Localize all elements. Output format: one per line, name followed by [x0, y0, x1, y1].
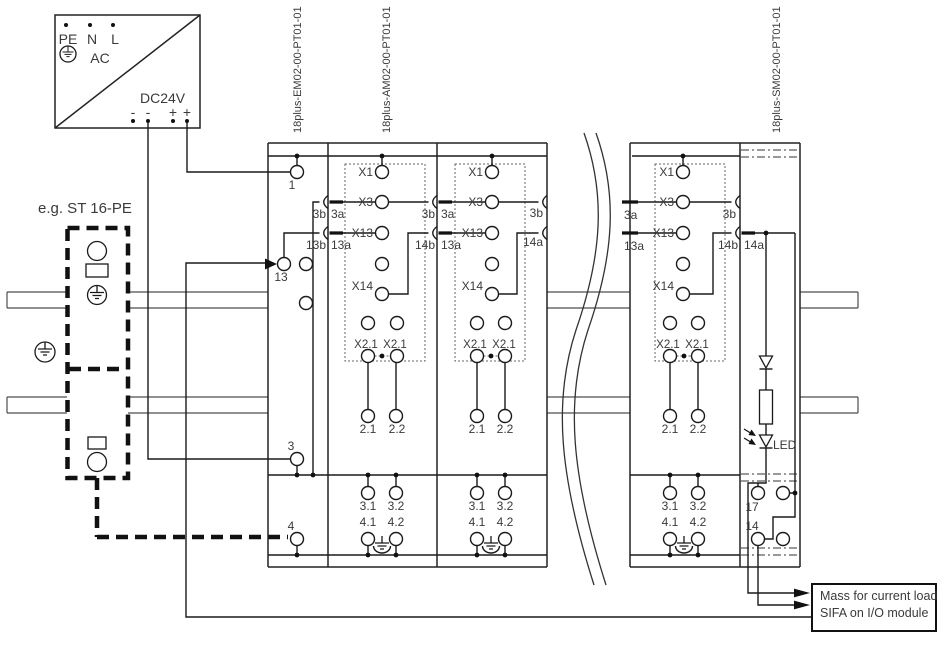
svg-text:3.2: 3.2 [497, 499, 514, 513]
output-mass-label: Mass for current load [820, 589, 937, 603]
supply-pin-l-label: L [111, 31, 119, 47]
svg-text:13b: 13b [306, 238, 326, 252]
wiring-diagram: PE N L AC DC24V - - + + e.g. ST 16-PE [0, 0, 948, 654]
st16-contact-rect-bottom [88, 437, 106, 449]
svg-text:3b: 3b [530, 206, 544, 220]
svg-text:X3: X3 [468, 195, 483, 209]
terminal-3-label: 3 [288, 439, 295, 453]
svg-text:4.2: 4.2 [690, 515, 707, 529]
svg-text:4.1: 4.1 [469, 515, 486, 529]
svg-text:13a: 13a [624, 239, 644, 253]
output-sifa-label: SIFA on I/O module [820, 606, 928, 620]
power-supply: PE N L AC DC24V - - + + [55, 15, 200, 128]
svg-text:3a: 3a [624, 208, 638, 222]
diode-icon [760, 356, 773, 368]
svg-text:2.2: 2.2 [690, 422, 707, 436]
led-label: LED [773, 438, 797, 452]
svg-text:3a: 3a [331, 207, 345, 221]
svg-text:X13: X13 [352, 226, 374, 240]
svg-text:4.1: 4.1 [360, 515, 377, 529]
terminal-17 [752, 487, 765, 500]
supply-ac-label: AC [90, 50, 109, 66]
terminal-14-label: 14 [745, 519, 759, 533]
led-arrows-icon [744, 429, 756, 445]
module2-type-label: 18plus-AM02-00-PT01-01 [381, 6, 393, 133]
svg-text:13a: 13a [441, 238, 461, 252]
svg-text:4.2: 4.2 [497, 515, 514, 529]
module-ground-icons [374, 536, 693, 553]
svg-text:14b: 14b [415, 238, 435, 252]
svg-text:X14: X14 [352, 279, 374, 293]
terminal-13 [278, 258, 291, 271]
svg-text:3.2: 3.2 [690, 499, 707, 513]
svg-text:X3: X3 [358, 195, 373, 209]
svg-text:4.1: 4.1 [662, 515, 679, 529]
st16-ground-icon [88, 286, 107, 305]
svg-text:X3: X3 [659, 195, 674, 209]
svg-text:2.2: 2.2 [497, 422, 514, 436]
din-rail [7, 292, 858, 413]
svg-text:14a: 14a [744, 238, 764, 252]
terminal-4 [291, 533, 304, 546]
svg-text:X14: X14 [462, 279, 484, 293]
svg-text:2.1: 2.1 [662, 422, 679, 436]
svg-text:X2.1: X2.1 [685, 339, 709, 351]
svg-text:3b: 3b [723, 207, 737, 221]
svg-text:X1: X1 [358, 165, 373, 179]
terminal-4-label: 4 [288, 519, 295, 533]
svg-text:14a: 14a [523, 235, 543, 249]
output-box: Mass for current load SIFA on I/O module [812, 584, 937, 631]
svg-text:3.2: 3.2 [388, 499, 405, 513]
svg-text:X2.1: X2.1 [656, 339, 680, 351]
supply-pin-n-label: N [87, 31, 97, 47]
terminal-1 [291, 166, 304, 179]
svg-text:3.1: 3.1 [662, 499, 679, 513]
svg-text:13a: 13a [331, 238, 351, 252]
svg-text:3.1: 3.1 [360, 499, 377, 513]
svg-text:X2.1: X2.1 [383, 339, 407, 351]
svg-text:14b: 14b [718, 238, 738, 252]
schematic-canvas: PE N L AC DC24V - - + + e.g. ST 16-PE [0, 0, 948, 654]
svg-text:X2.1: X2.1 [463, 339, 487, 351]
resistor-icon [760, 390, 773, 424]
st16-contact-circle-top [88, 242, 107, 261]
svg-text:X1: X1 [468, 165, 483, 179]
svg-text:2.1: 2.1 [469, 422, 486, 436]
module1-type-label: 18plus-EM02-00-PT01-01 [292, 6, 304, 133]
st16-pe-device: e.g. ST 16-PE [38, 200, 288, 537]
svg-text:3a: 3a [441, 207, 455, 221]
svg-text:2.2: 2.2 [389, 422, 406, 436]
supply-minus-2: - [146, 104, 151, 120]
supply-ground-icon [60, 46, 76, 62]
svg-text:3.1: 3.1 [469, 499, 486, 513]
terminal-points [278, 166, 790, 546]
svg-text:X2.1: X2.1 [492, 339, 516, 351]
terminal-3 [291, 453, 304, 466]
break-curves [562, 133, 610, 585]
svg-text:3b: 3b [422, 207, 436, 221]
module3-type-label: 18plus-SM02-00-PT01-01 [771, 6, 783, 133]
svg-text:X14: X14 [653, 279, 675, 293]
indicator-branch: LED [744, 356, 797, 452]
terminal-13-label: 13 [274, 270, 288, 284]
st16-contact-circle-bottom [88, 453, 107, 472]
svg-text:3b: 3b [313, 207, 327, 221]
svg-text:X13: X13 [653, 226, 675, 240]
supply-plus-1: + [169, 104, 177, 120]
supply-plus-2: + [183, 104, 191, 120]
terminal-17-label: 17 [745, 500, 759, 514]
labels: 18plus-EM02-00-PT01-01 18plus-AM02-00-PT… [274, 6, 783, 533]
st16-contact-rect-top [86, 264, 108, 277]
svg-text:X2.1: X2.1 [354, 339, 378, 351]
supply-minus-1: - [131, 104, 136, 120]
led-icon [760, 435, 773, 447]
terminal-14 [752, 533, 765, 546]
rail-ground-icon [35, 342, 55, 362]
svg-text:2.1: 2.1 [360, 422, 377, 436]
svg-text:X13: X13 [462, 226, 484, 240]
terminal-1-label: 1 [289, 178, 296, 192]
svg-text:X1: X1 [659, 165, 674, 179]
st16-pe-label: e.g. ST 16-PE [38, 200, 132, 217]
svg-text:4.2: 4.2 [388, 515, 405, 529]
supply-pin-pe-label: PE [59, 31, 78, 47]
